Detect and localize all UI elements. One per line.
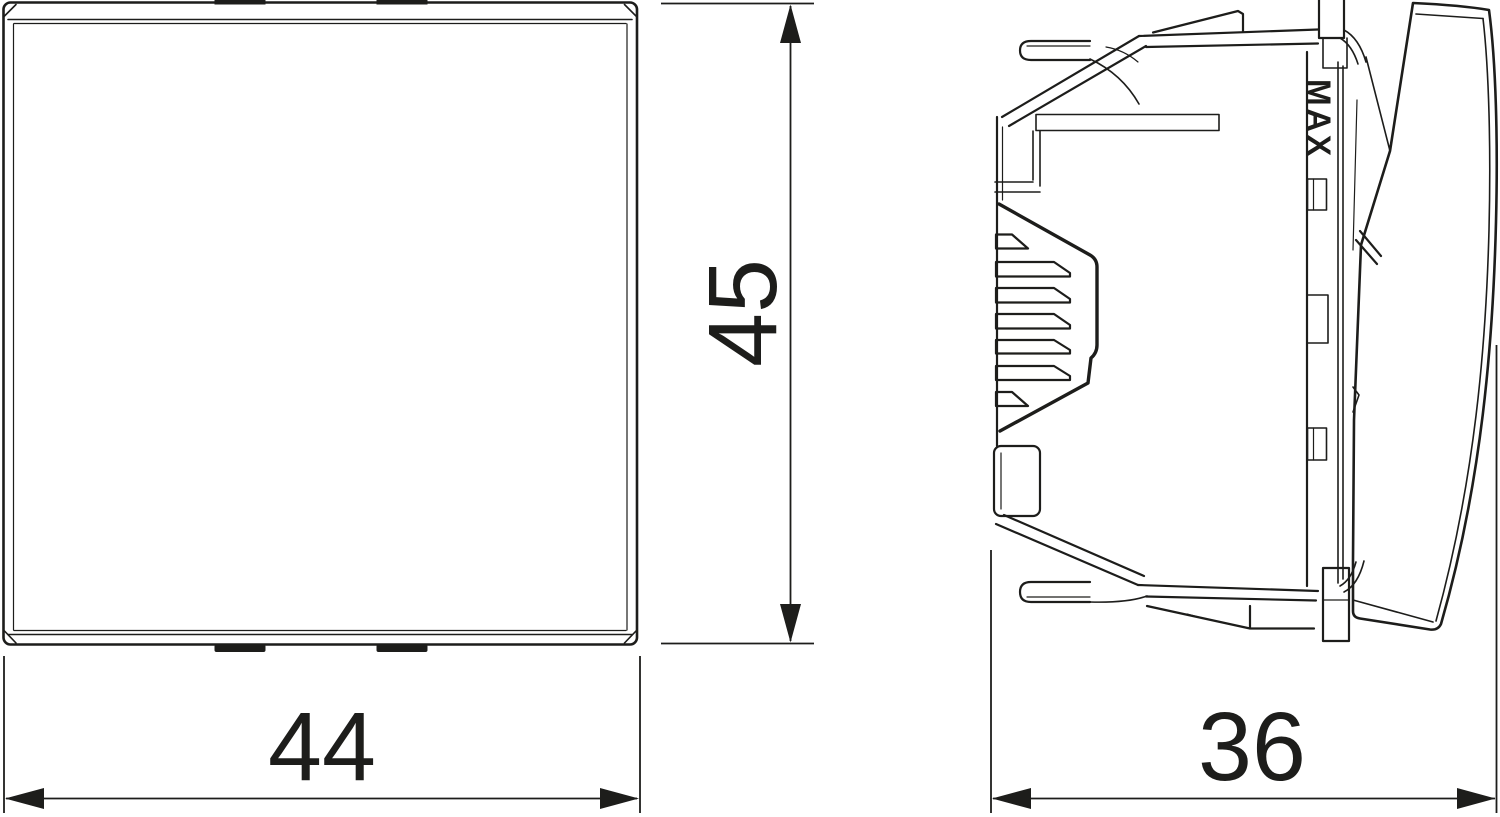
front-corner-chamfer: [625, 631, 637, 643]
rocker-face-line: [1353, 100, 1357, 250]
retainer-bar: [1036, 115, 1219, 131]
claw-strut: [996, 524, 1138, 585]
claw-cheek-curve: [1090, 59, 1139, 104]
bottom-mounting-claw: [996, 515, 1147, 602]
dimension-arrowhead: [780, 604, 801, 643]
mounting-tab: [215, 645, 266, 653]
dimension-width: 44: [4, 656, 640, 813]
front-corner-chamfer: [5, 631, 17, 643]
top-mounting-claw: [1002, 36, 1146, 126]
top-post: [1319, 0, 1344, 38]
claw-finger: [1020, 582, 1090, 602]
max-marking-label: MAX: [1301, 79, 1337, 159]
dimension-height-label: 45: [688, 259, 797, 367]
drawing-canvas: 45 44: [0, 0, 1500, 817]
rocker-outline: [1353, 3, 1497, 630]
dimension-depth-label: 36: [1198, 692, 1306, 801]
grille-slot: [996, 340, 1070, 354]
mounting-tab: [215, 0, 266, 5]
claw-finger: [1020, 41, 1090, 60]
dimension-arrowhead: [600, 788, 639, 809]
dimension-height: 45: [661, 4, 814, 644]
grille-slot: [996, 288, 1070, 303]
frame-section: [1338, 30, 1366, 592]
side-view: MAX: [994, 0, 1497, 641]
top-post-block: [1323, 38, 1347, 68]
housing-top-ridge: [1153, 11, 1243, 33]
dimension-width-label: 44: [268, 692, 376, 801]
dimension-depth: 36: [991, 345, 1497, 813]
bottom-post: [1323, 568, 1349, 641]
housing-bottom-edge: [1138, 585, 1318, 591]
rocker-pivot-line: [1366, 57, 1390, 151]
dimension-arrowhead: [992, 788, 1031, 809]
housing-top-edge: [1139, 30, 1318, 37]
claw-cheek-curve: [1090, 596, 1147, 602]
clip-outline: [1308, 428, 1327, 460]
dimension-arrowhead: [1457, 788, 1496, 809]
claw-strut: [1004, 515, 1144, 576]
dimension-arrowhead: [5, 788, 44, 809]
technical-drawing: 45 44: [0, 0, 1500, 817]
rocker-button: [1353, 3, 1497, 630]
housing-clip: [1308, 179, 1327, 210]
mounting-tab: [377, 0, 428, 5]
grille-slot: [996, 392, 1028, 406]
grille-outline: [999, 204, 1097, 431]
grille-slot: [996, 235, 1028, 249]
spring-grille: [996, 204, 1097, 431]
rocker-inner-top: [1416, 14, 1483, 19]
housing-bottom-wedge: [1147, 606, 1314, 629]
housing-step: [1307, 295, 1328, 343]
housing-bottom-edge-inner: [1146, 597, 1316, 601]
front-corner-chamfer: [5, 5, 17, 17]
front-outer-outline: [4, 3, 638, 645]
mounting-tab: [377, 645, 428, 653]
front-view: [4, 0, 638, 652]
retainer-hook: [1033, 131, 1040, 186]
grille-slot: [996, 314, 1070, 329]
front-corner-chamfer: [625, 5, 637, 17]
grille-slot: [996, 262, 1070, 277]
housing-top-edge-inner: [1146, 44, 1318, 48]
clip-outline: [1308, 179, 1327, 210]
housing-clip: [1308, 428, 1327, 460]
grille-slot: [996, 366, 1070, 380]
retainer-hook-step: [995, 182, 1040, 192]
claw-strut: [1002, 36, 1139, 117]
dimension-arrowhead: [780, 5, 801, 44]
